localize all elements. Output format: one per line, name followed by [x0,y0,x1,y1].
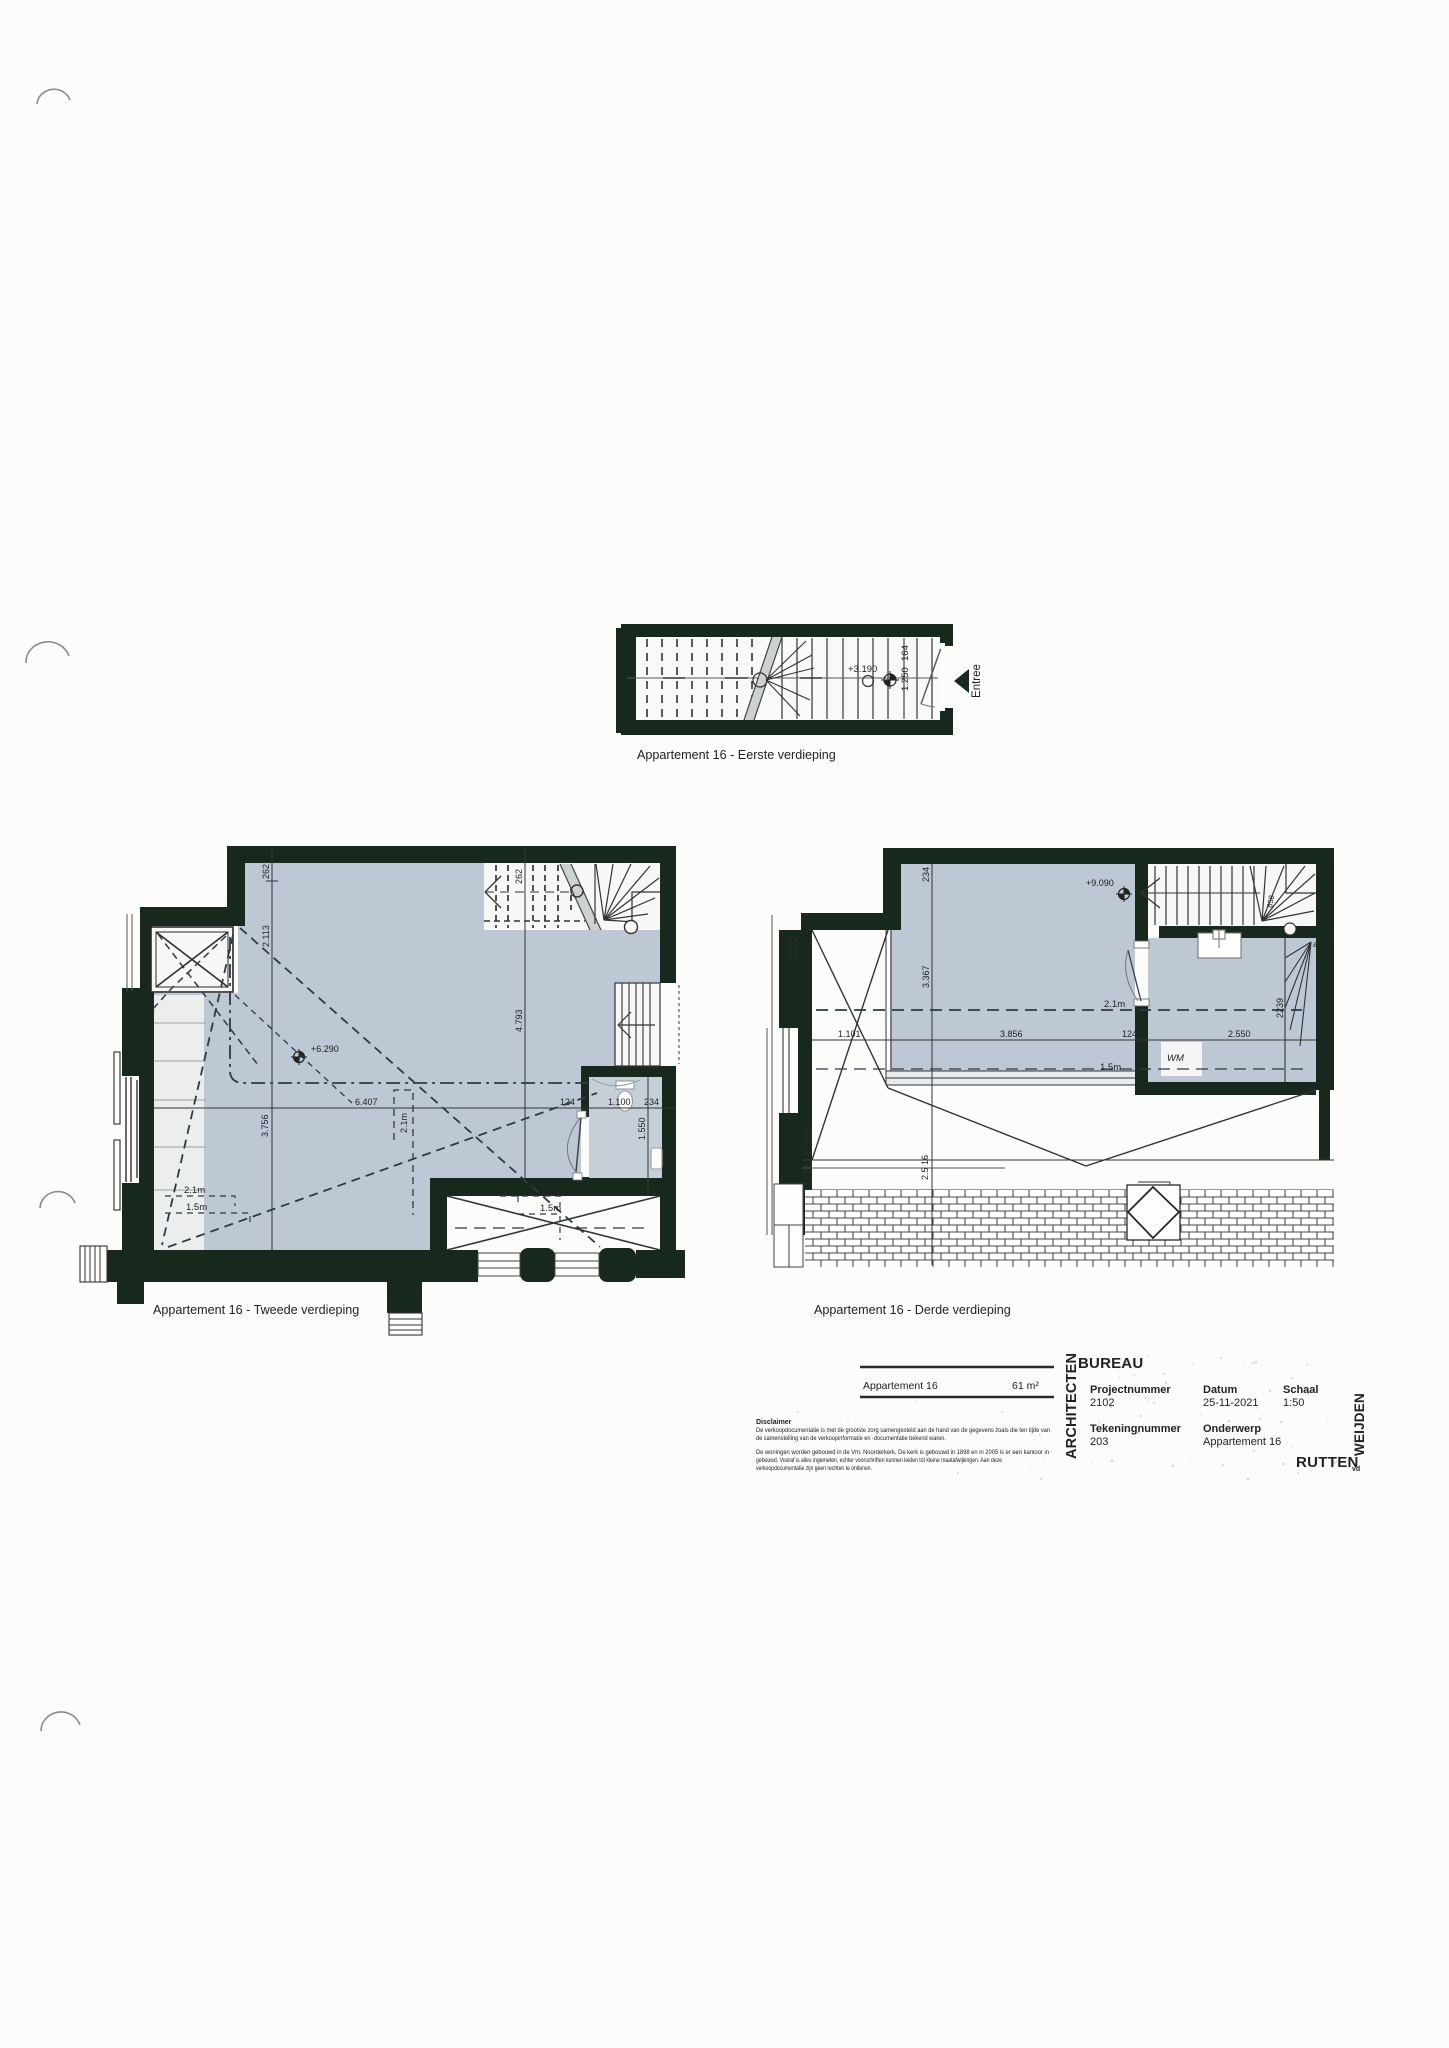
svg-text:Appartement 16 - Eerste verdie: Appartement 16 - Eerste verdieping [637,748,836,762]
svg-text:WEIJDEN: WEIJDEN [1352,1393,1367,1456]
svg-text:gebouwd. Vooraf is alles ingem: gebouwd. Vooraf is alles ingemeten, echt… [756,1457,1002,1464]
svg-text:1.5m: 1.5m [540,1203,561,1214]
svg-text:25-11-2021: 25-11-2021 [1203,1397,1258,1409]
svg-text:3.367: 3.367 [921,965,931,988]
svg-text:1:50: 1:50 [1283,1397,1304,1409]
svg-text:De woningen worden gebouwd in: De woningen worden gebouwd in de Vm. Noo… [756,1449,1049,1456]
svg-text:Projectnummer: Projectnummer [1090,1384,1171,1396]
svg-text:2.550: 2.550 [1228,1029,1251,1039]
svg-text:4.793: 4.793 [514,1009,524,1032]
svg-text:3.756: 3.756 [260,1114,270,1137]
svg-text:2102: 2102 [1090,1397,1114,1409]
svg-text:2.1m: 2.1m [399,1113,409,1133]
svg-text:61 m²: 61 m² [1012,1380,1039,1392]
svg-text:Appartement 16 - Derde verdiep: Appartement 16 - Derde verdieping [814,1303,1011,1317]
svg-text:3.856: 3.856 [1000,1029,1023,1039]
svg-text:124: 124 [560,1097,575,1107]
svg-text:Entree: Entree [971,664,983,698]
svg-text:124: 124 [1122,1029,1137,1039]
svg-text:RUTTEN: RUTTEN [1296,1454,1359,1471]
svg-text:vd: vd [1352,1466,1360,1473]
svg-text:1.101: 1.101 [838,1029,861,1039]
svg-text:a: a [1313,940,1318,949]
svg-text:BUREAU: BUREAU [1078,1355,1143,1372]
svg-text:De verkoopdocumentatie is met: De verkoopdocumentatie is met de grootst… [756,1427,1050,1434]
svg-text:1.5m: 1.5m [1100,1062,1121,1073]
svg-text:+3.190: +3.190 [848,664,877,675]
svg-text:164: 164 [900,645,911,661]
svg-text:WM: WM [1167,1053,1184,1064]
svg-text:2.1m: 2.1m [1104,999,1125,1010]
svg-text:2.1m: 2.1m [540,1185,561,1196]
svg-text:Tekeningnummer: Tekeningnummer [1090,1423,1182,1435]
svg-text:2239: 2239 [1275,998,1285,1018]
svg-text:6.407: 6.407 [355,1097,378,1107]
svg-text:Schaal: Schaal [1283,1384,1318,1396]
svg-text:234: 234 [921,867,931,882]
svg-text:Onderwerp: Onderwerp [1203,1423,1261,1435]
svg-text:Appartement 16 - Tweede verdie: Appartement 16 - Tweede verdieping [153,1303,359,1317]
svg-text:verkoopdocumentatie zijn geen: verkoopdocumentatie zijn geen rechten te… [756,1465,872,1472]
svg-text:+9.090: +9.090 [1086,878,1114,888]
svg-text:1.250: 1.250 [900,667,911,691]
svg-text:262: 262 [261,864,271,879]
svg-text:1.550: 1.550 [637,1117,647,1140]
svg-text:Disclaimer: Disclaimer [756,1419,792,1426]
svg-text:234: 234 [644,1097,659,1107]
svg-text:2.113: 2.113 [261,925,271,947]
svg-text:2.1m: 2.1m [184,1185,205,1196]
svg-text:Appartement 16: Appartement 16 [863,1380,938,1392]
svg-text:de samenstelling van de verkoo: de samenstelling van de verkoopinformati… [756,1435,946,1442]
svg-text:+6.290: +6.290 [311,1044,339,1054]
svg-text:1.5m: 1.5m [186,1202,207,1213]
svg-text:1.100: 1.100 [608,1097,631,1107]
svg-text:203: 203 [1090,1436,1108,1448]
svg-text:262: 262 [514,869,524,884]
svg-text:Appartement 16: Appartement 16 [1203,1436,1281,1448]
svg-text:2.5 16: 2.5 16 [920,1155,930,1180]
svg-text:Datum: Datum [1203,1384,1237,1396]
